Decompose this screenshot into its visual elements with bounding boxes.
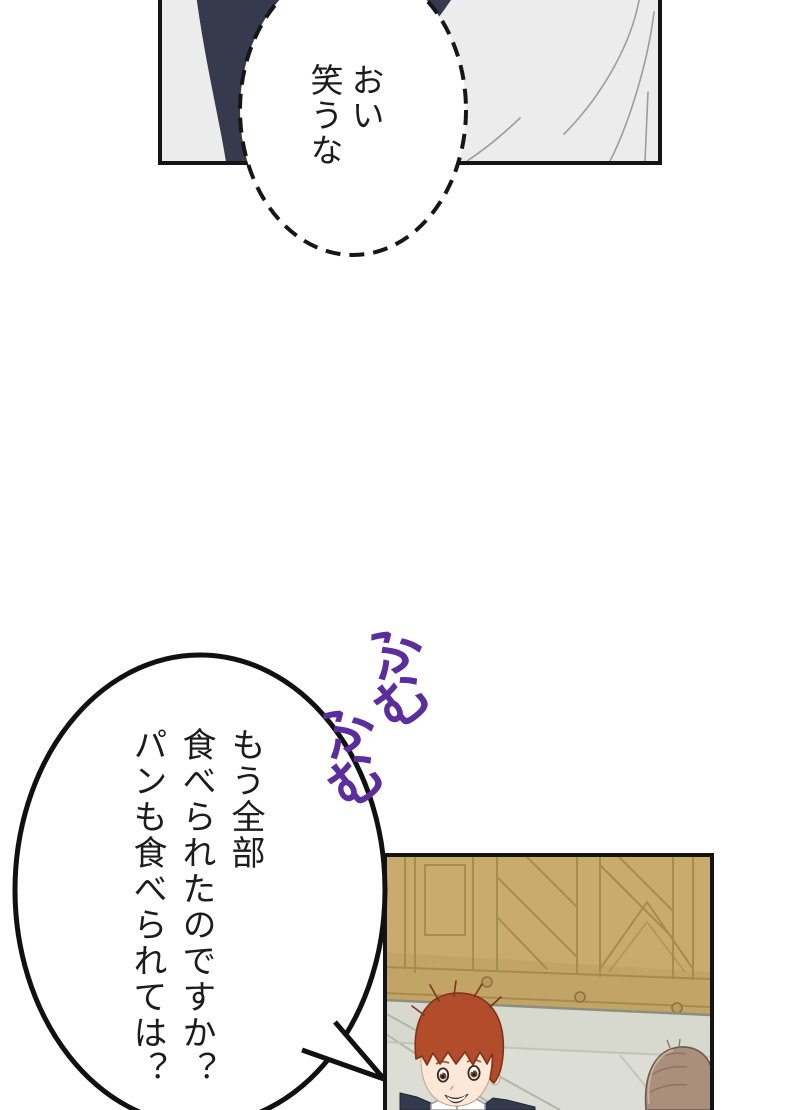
top-panel [158, 0, 662, 165]
top-panel-art [162, 0, 658, 161]
question-line-3: パンも食べられては？ [122, 727, 171, 1087]
question-line-1: もう全部 [220, 727, 269, 1087]
fabric-fold-lines [406, 0, 654, 161]
bottom-panel [383, 853, 714, 1110]
whisper-bubble-text: おい 笑うな [304, 63, 386, 168]
question-bubble-tail [302, 1022, 384, 1079]
question-line-2: 食べられたのですか？ [171, 727, 220, 1087]
bottom-panel-art [387, 857, 710, 1110]
question-bubble-text: もう全部 食べられたのですか？ パンも食べられては？ [122, 727, 269, 1087]
whisper-line-1: おい [345, 63, 386, 168]
whisper-line-2: 笑うな [304, 63, 345, 168]
